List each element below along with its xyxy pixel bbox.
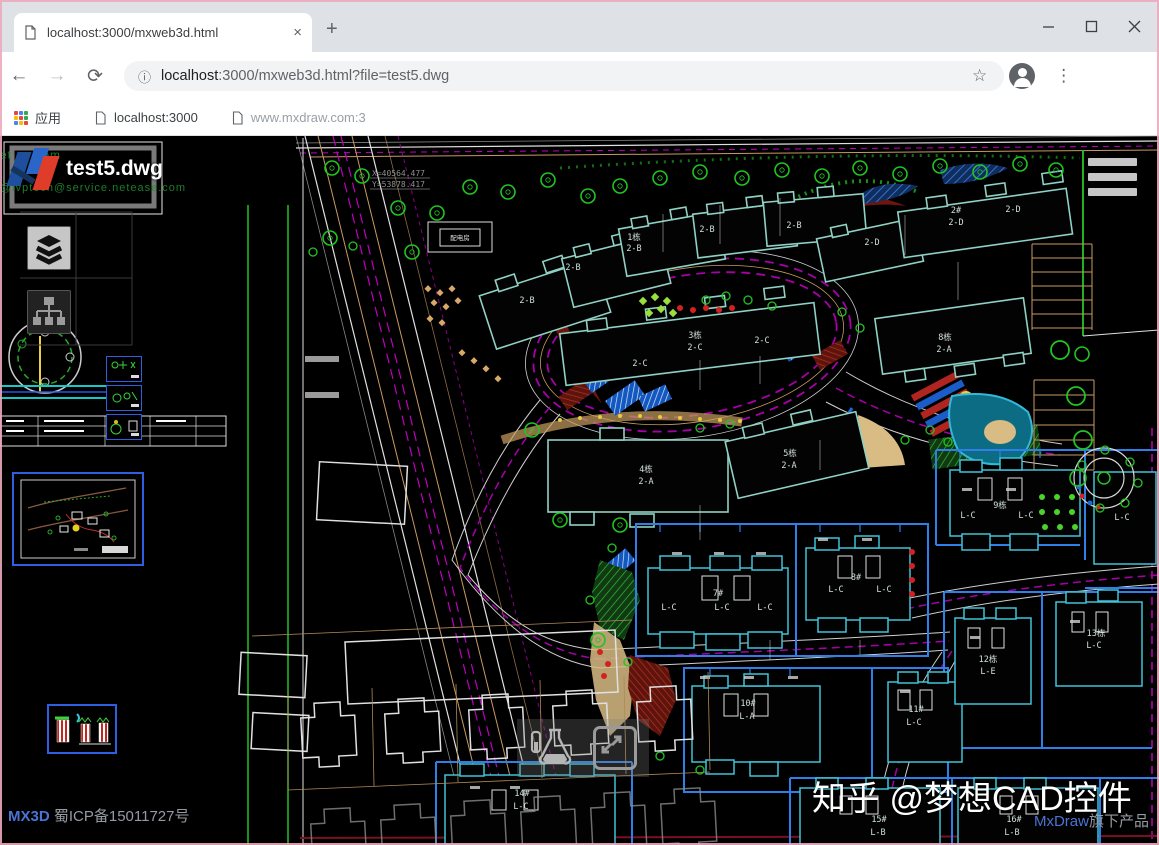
app-logo-block: test5.dwg: [8, 148, 163, 190]
browser-menu-icon[interactable]: ⋮: [1055, 66, 1072, 86]
svg-text:2-D: 2-D: [864, 238, 879, 248]
layers-button[interactable]: [27, 226, 71, 270]
legend-thumbnail-1[interactable]: [106, 356, 142, 382]
svg-text:4栋: 4栋: [639, 464, 653, 475]
footer-right: MxDraw旗下产品: [1034, 810, 1149, 831]
svg-text:L-C: L-C: [828, 585, 843, 595]
profile-avatar[interactable]: [1009, 63, 1035, 89]
detail-thumbnail[interactable]: [47, 704, 117, 754]
svg-text:2-B: 2-B: [786, 221, 801, 231]
footer-left: MX3D 蜀ICP备15011727号: [8, 805, 190, 826]
svg-text:L-C: L-C: [661, 603, 676, 613]
mxdraw-logo-icon: [8, 148, 58, 190]
expand-arrows-icon: [596, 729, 627, 760]
svg-text:L-C: L-C: [714, 603, 729, 613]
back-button[interactable]: ←: [0, 65, 38, 87]
mxdraw-suffix: 旗下产品: [1089, 813, 1149, 830]
svg-text:Y=53878.417: Y=53878.417: [372, 180, 425, 189]
overview-thumbnail[interactable]: [12, 472, 144, 566]
site-info-icon[interactable]: ⓘ: [138, 67, 151, 86]
mx3d-link[interactable]: MX3D: [8, 808, 50, 825]
bookmark-star-icon[interactable]: ☆: [972, 66, 987, 86]
cad-viewer: X=40564.477 Y=53878.417 2-B 2-B 1栋 2-B 2…: [0, 136, 1159, 845]
svg-text:L-C: L-C: [906, 718, 921, 728]
svg-text:2-B: 2-B: [519, 296, 534, 306]
svg-text:2-D: 2-D: [1005, 205, 1020, 215]
apps-label[interactable]: 应用: [35, 108, 61, 127]
structure-button[interactable]: [27, 290, 71, 334]
svg-text:12栋: 12栋: [979, 654, 998, 665]
svg-text:L-C: L-C: [876, 585, 891, 595]
forward-button[interactable]: →: [38, 65, 76, 87]
svg-text:3栋: 3栋: [688, 330, 702, 341]
svg-text:14#: 14#: [514, 789, 530, 799]
browser-window: localhost:3000/mxweb3d.html × + ← → ⟳ ⓘ …: [0, 0, 1159, 845]
close-icon[interactable]: [1128, 20, 1141, 33]
title-bar: localhost:3000/mxweb3d.html × +: [0, 0, 1159, 52]
test-flask-button[interactable]: [527, 724, 579, 772]
svg-text:配电房: 配电房: [450, 233, 470, 242]
icp-text: 蜀ICP备15011727号: [54, 808, 190, 825]
url-text: localhost:3000/mxweb3d.html?file=test5.d…: [161, 68, 449, 84]
svg-text:2-C: 2-C: [754, 336, 769, 346]
svg-text:L-C: L-C: [1018, 511, 1033, 521]
structure-tree-icon: [31, 295, 67, 329]
svg-text:2-D: 2-D: [948, 218, 963, 228]
layers-icon: [31, 231, 67, 265]
bookmark-page-icon: [95, 111, 107, 125]
maximize-icon[interactable]: [1085, 20, 1098, 33]
svg-text:2-A: 2-A: [638, 477, 653, 487]
svg-text:2-A: 2-A: [781, 461, 796, 471]
svg-text:L-B: L-B: [870, 828, 885, 838]
minimize-icon[interactable]: [1042, 20, 1055, 33]
bookmark-item[interactable]: www.mxdraw.com:3: [251, 110, 366, 125]
mxdraw-link[interactable]: MxDraw: [1034, 813, 1089, 830]
svg-text:2-C: 2-C: [687, 343, 702, 353]
svg-text:8#: 8#: [851, 573, 862, 583]
svg-text:9栋: 9栋: [993, 500, 1007, 511]
svg-text:L-C: L-C: [1086, 641, 1101, 651]
svg-text:L-A: L-A: [739, 712, 754, 722]
address-bar[interactable]: ⓘ localhost:3000/mxweb3d.html?file=test5…: [124, 61, 1004, 91]
svg-text:1栋: 1栋: [627, 232, 641, 243]
browser-tab[interactable]: localhost:3000/mxweb3d.html ×: [14, 13, 312, 52]
svg-text:L-C: L-C: [513, 802, 528, 812]
url-rest: :3000/mxweb3d.html?file=test5.dwg: [218, 68, 449, 84]
svg-text:L-C: L-C: [757, 603, 772, 613]
bottom-tool-panel: [517, 719, 649, 777]
svg-text:2#: 2#: [951, 206, 962, 216]
svg-text:L-B: L-B: [1004, 828, 1019, 838]
svg-text:L-C: L-C: [1114, 513, 1129, 523]
reload-button[interactable]: ⟳: [76, 65, 114, 88]
svg-text:L-C: L-C: [960, 511, 975, 521]
svg-text:13栋: 13栋: [1087, 628, 1106, 639]
apps-grid-icon[interactable]: [14, 111, 28, 125]
bookmarks-bar: 应用 localhost:3000 www.mxdraw.com:3: [0, 100, 1159, 136]
menu-button[interactable]: [1088, 158, 1137, 196]
window-controls: [1042, 0, 1151, 52]
svg-text:5栋: 5栋: [783, 448, 797, 459]
url-host: localhost: [161, 68, 218, 84]
svg-text:2-B: 2-B: [699, 225, 714, 235]
svg-text:2-C: 2-C: [632, 359, 647, 369]
svg-text:2-B: 2-B: [565, 263, 580, 273]
browser-toolbar: ← → ⟳ ⓘ localhost:3000/mxweb3d.html?file…: [0, 52, 1159, 100]
svg-text:7#: 7#: [713, 589, 724, 599]
svg-text:X=40564.477: X=40564.477: [372, 169, 425, 178]
svg-text:2-A: 2-A: [936, 345, 951, 355]
svg-text:2-B: 2-B: [626, 244, 641, 254]
svg-text:8栋: 8栋: [938, 332, 952, 343]
legend-thumbnail-2[interactable]: [106, 385, 142, 411]
new-tab-button[interactable]: +: [326, 18, 338, 41]
bookmark-item[interactable]: localhost:3000: [114, 110, 198, 125]
svg-text:11#: 11#: [908, 705, 924, 715]
document-title: test5.dwg: [66, 157, 163, 181]
tab-close-icon[interactable]: ×: [293, 25, 302, 40]
page-favicon-icon: [24, 25, 37, 40]
bookmark-page-icon: [232, 111, 244, 125]
svg-text:10#: 10#: [740, 699, 756, 709]
tab-title: localhost:3000/mxweb3d.html: [47, 25, 265, 40]
legend-thumbnail-3[interactable]: [106, 414, 142, 440]
fullscreen-button[interactable]: [593, 726, 637, 770]
svg-text:L-E: L-E: [980, 667, 995, 677]
